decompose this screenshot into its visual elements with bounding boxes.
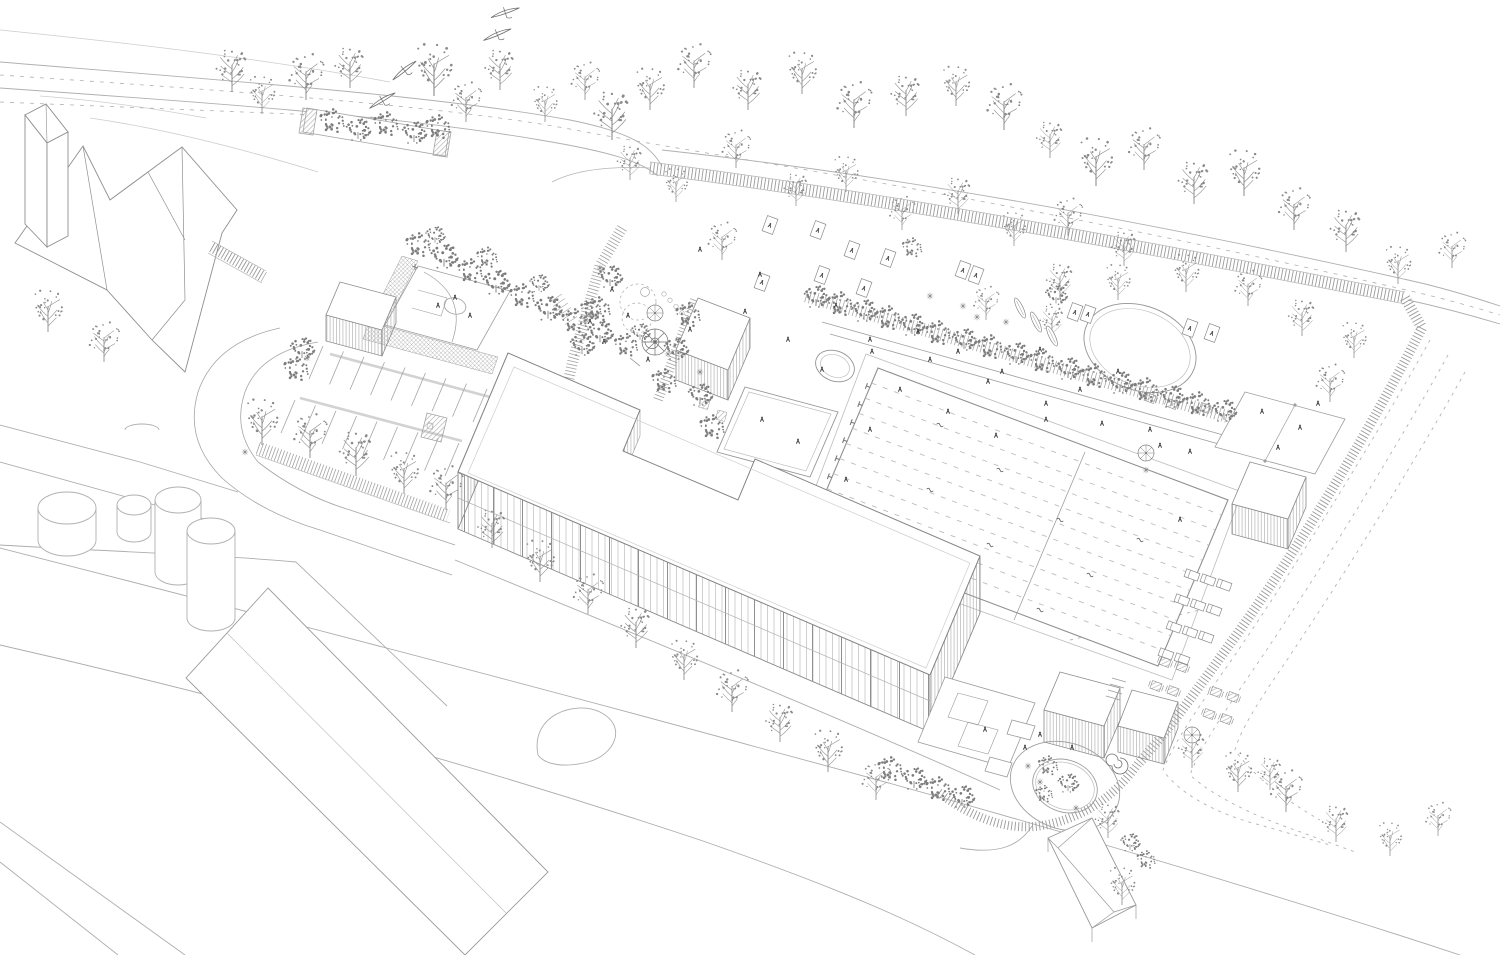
bare-tree <box>835 156 859 192</box>
person-figure <box>868 337 871 342</box>
bare-tree <box>1316 364 1346 402</box>
canopy-tree <box>476 246 498 267</box>
picnic-blanket <box>1204 324 1220 343</box>
bare-tree <box>1278 187 1311 230</box>
person-figure <box>1316 401 1319 406</box>
picnic-table <box>1225 691 1241 703</box>
picnic-table <box>1201 708 1217 720</box>
picnic-blanket <box>1182 319 1198 338</box>
bare-tree <box>862 762 892 800</box>
person-figure <box>1148 427 1151 432</box>
canopy-tree <box>509 283 534 308</box>
person-figure <box>743 309 746 314</box>
bird-icon <box>489 3 521 24</box>
person-figure <box>1038 732 1041 737</box>
bare-tree <box>571 62 601 100</box>
bush <box>925 776 950 801</box>
flower <box>974 314 980 320</box>
bare-tree <box>708 222 738 260</box>
canopy-tree <box>614 333 638 357</box>
bare-tree <box>671 640 698 680</box>
flower <box>1037 779 1043 785</box>
top-road <box>0 62 1500 324</box>
bare-tree <box>417 43 452 96</box>
bare-tree <box>1425 802 1451 836</box>
bare-tree <box>783 174 806 206</box>
person-figure <box>1038 347 1041 352</box>
person-figure <box>646 357 649 362</box>
bare-tree <box>534 86 558 122</box>
canopy-tree <box>902 237 922 257</box>
person-figure <box>870 349 873 354</box>
sun-lounger <box>1216 579 1232 591</box>
picnic-blanket <box>856 279 872 298</box>
parasol <box>647 305 663 321</box>
picnic-table <box>1197 402 1213 414</box>
accessible-parking-stall <box>421 413 447 442</box>
bare-tree <box>1178 162 1209 204</box>
wading-pool <box>717 387 838 477</box>
bird-icon <box>389 57 420 85</box>
person-figure <box>1100 421 1103 426</box>
parking-stalls <box>281 346 487 476</box>
bare-tree <box>986 83 1022 130</box>
parking-stall-line <box>384 427 398 460</box>
picnic-blanket <box>844 241 860 260</box>
bare-tree <box>665 168 688 202</box>
axonometric-site-plan: Axonometric site plan line drawing Black… <box>0 0 1500 955</box>
canopy-tree <box>1045 285 1068 305</box>
bare-tree <box>1234 270 1262 306</box>
parking-lot <box>194 328 490 575</box>
flower <box>242 449 248 455</box>
canopy-tree <box>535 296 563 321</box>
picnic-blanket <box>880 249 896 268</box>
bare-tree <box>943 66 970 106</box>
person-figure <box>1078 387 1081 392</box>
bare-tree <box>451 81 482 122</box>
bare-tree <box>765 704 793 742</box>
round-pool-large <box>1070 287 1209 408</box>
bush <box>1056 357 1082 379</box>
parking-stall-line <box>404 432 418 465</box>
bare-tree <box>1054 198 1084 236</box>
grass-strip <box>256 448 450 523</box>
bush <box>804 285 830 307</box>
parking-stall-line <box>363 422 377 455</box>
person-figure <box>698 247 701 252</box>
site-plan-canvas: Axonometric site plan line drawing Black… <box>0 0 1500 955</box>
parasol <box>1138 445 1154 461</box>
canopy-tree <box>431 244 459 269</box>
bare-tree <box>89 321 120 362</box>
canopy-tree <box>587 321 614 345</box>
canopy-tree <box>1035 785 1053 802</box>
bush <box>290 337 316 359</box>
person-figure <box>834 303 837 308</box>
bare-tree <box>677 43 712 88</box>
bare-tree <box>288 53 324 100</box>
storage-cylinders <box>38 424 235 631</box>
canopy-tree <box>529 274 550 292</box>
parking-loop-inner <box>241 342 318 462</box>
person-figure <box>956 349 959 354</box>
flower <box>1003 319 1009 325</box>
bare-tree <box>1386 246 1411 284</box>
bare-tree <box>836 81 872 128</box>
bare-tree <box>1438 232 1466 268</box>
pavilion-northwest <box>676 298 750 400</box>
bare-tree <box>637 68 665 110</box>
bare-tree <box>1107 264 1131 300</box>
bush <box>902 767 928 789</box>
canoe <box>1028 311 1043 333</box>
bird-icon <box>481 24 513 47</box>
bare-tree <box>732 70 761 110</box>
parking-stall-line <box>445 443 459 476</box>
flower <box>583 317 589 323</box>
bare-tree <box>1330 210 1361 252</box>
bare-tree <box>1343 322 1367 358</box>
pavilion-volleyball <box>1232 462 1306 549</box>
house-southeast <box>1048 818 1136 942</box>
bare-tree <box>293 413 328 458</box>
sun-lounger <box>1182 626 1198 638</box>
stepping-stone <box>662 292 666 296</box>
person-figure <box>1044 401 1047 406</box>
bare-tree <box>1229 149 1260 196</box>
bird-icon <box>367 88 399 114</box>
bare-tree <box>334 48 363 88</box>
canoe <box>1012 297 1027 319</box>
flower <box>697 369 703 375</box>
volleyball-court <box>1215 392 1345 474</box>
bare-tree <box>789 52 817 94</box>
bare-tree <box>1379 822 1402 856</box>
person-figure <box>1158 443 1161 448</box>
picnic-blanket <box>968 266 984 285</box>
stepping-stone <box>668 298 672 302</box>
person-figure <box>928 357 931 362</box>
flower <box>304 355 310 361</box>
bush <box>570 333 596 355</box>
flower <box>597 265 603 271</box>
picnic-blanket <box>814 266 830 285</box>
sun-lounger <box>1190 599 1206 611</box>
bare-tree <box>247 398 278 445</box>
flower <box>960 303 966 309</box>
bare-tree <box>815 730 843 772</box>
bare-tree <box>1225 752 1252 792</box>
flower <box>927 293 933 299</box>
kiosk-b <box>1118 690 1178 764</box>
parking-stall-line <box>281 400 295 433</box>
bare-tree <box>593 92 628 140</box>
church <box>15 104 266 372</box>
bare-tree <box>35 290 63 332</box>
spiral-stair <box>1106 754 1128 774</box>
flower <box>1143 467 1149 473</box>
parking-stall-line <box>309 346 323 379</box>
bush <box>585 296 610 321</box>
bare-tree <box>1036 122 1062 158</box>
parking-stall-line <box>425 438 439 471</box>
picnic-table <box>1208 686 1224 698</box>
sun-lounger <box>1198 631 1214 643</box>
picnic-blanket <box>754 273 770 292</box>
canopy-tree <box>1137 850 1156 869</box>
bush <box>598 265 624 287</box>
picnic-table <box>1165 685 1181 697</box>
bare-tree <box>391 452 419 494</box>
bare-tree <box>890 76 919 116</box>
bare-tree <box>722 130 752 168</box>
flower <box>1025 763 1031 769</box>
parking-stall-line <box>343 416 357 449</box>
bare-tree <box>1128 127 1161 170</box>
canopy-tree <box>1058 774 1080 793</box>
bare-tree <box>1081 137 1114 186</box>
sun-lounger <box>1206 604 1222 616</box>
bare-tree <box>617 146 642 180</box>
bare-tree <box>339 432 371 476</box>
sun-lounger <box>1200 574 1216 586</box>
canopy-tree <box>1120 833 1141 851</box>
picnic-table <box>1148 680 1164 692</box>
canopy-tree <box>405 232 430 257</box>
bare-tree <box>216 50 247 92</box>
bare-tree <box>716 669 749 712</box>
round-pool-small <box>811 345 859 388</box>
picnic-blanket <box>762 216 778 235</box>
bare-tree <box>1257 758 1280 790</box>
picnic-blanket <box>810 221 826 240</box>
person-figure <box>1023 745 1026 750</box>
flower <box>1073 805 1079 811</box>
bush <box>950 785 976 807</box>
person-figure <box>786 337 789 342</box>
parking-stall-line <box>322 411 336 444</box>
bare-tree <box>1322 806 1348 842</box>
bare-tree <box>484 50 513 90</box>
person-figure <box>588 319 591 324</box>
bare-tree <box>1288 300 1314 336</box>
person-figure <box>1188 449 1191 454</box>
picnic-table <box>1218 713 1234 725</box>
flower <box>665 351 671 357</box>
kiosk-a <box>1044 672 1120 758</box>
person-figure <box>1044 417 1047 422</box>
parasol <box>1184 727 1200 743</box>
picnic-blanket <box>955 261 971 280</box>
bare-tree <box>620 608 649 648</box>
